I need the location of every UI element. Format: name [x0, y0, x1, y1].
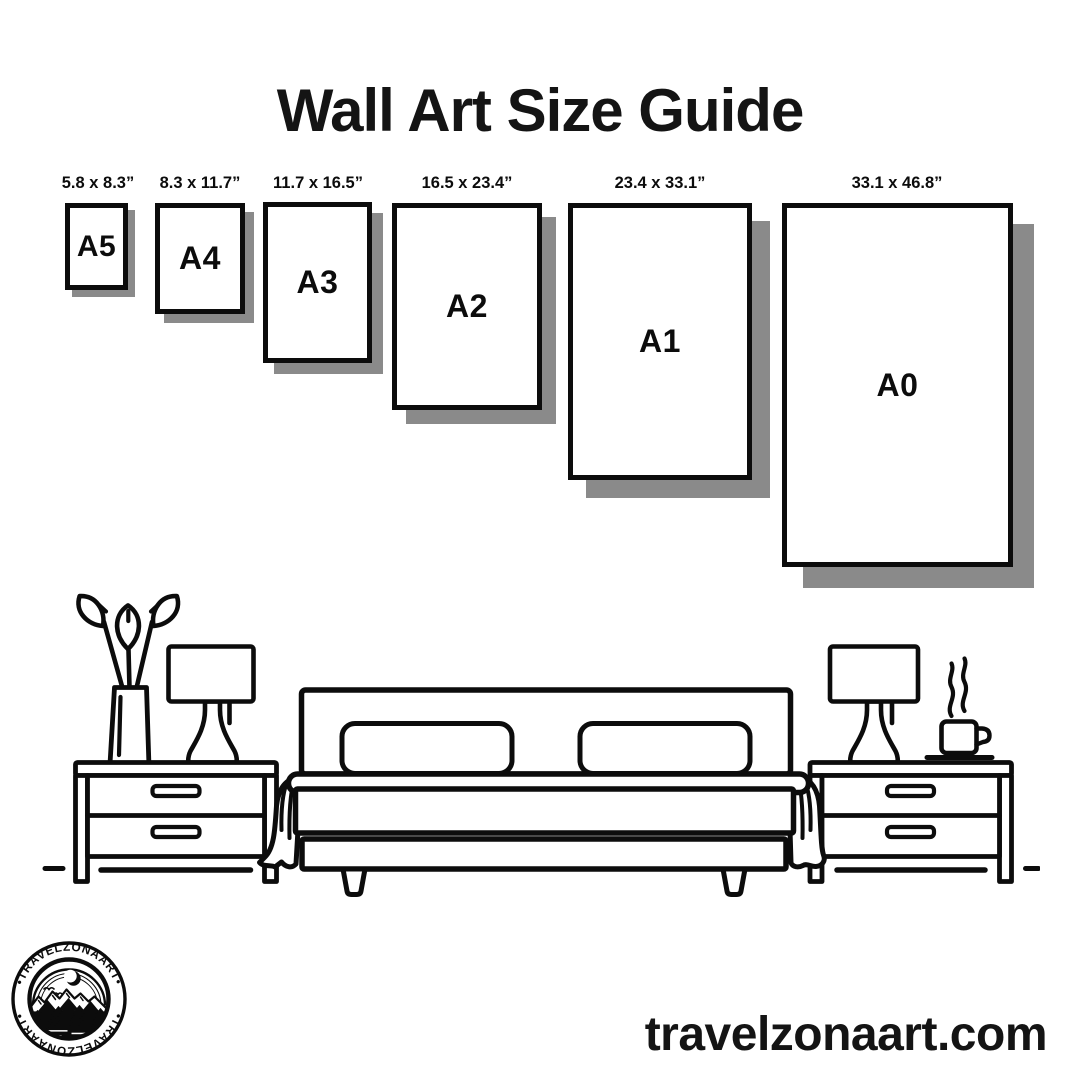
nightstand-right-icon — [810, 763, 1012, 882]
pillow-right-icon — [580, 724, 750, 774]
size-code-a5: A5 — [77, 230, 116, 264]
dimension-label-a5: 5.8 x 8.3” — [62, 174, 134, 193]
page-title: Wall Art Size Guide — [0, 81, 1080, 141]
size-guide-poster: Wall Art Size Guide 5.8 x 8.3” 8.3 x 11.… — [0, 0, 1080, 1080]
table-lamp-right-icon — [830, 647, 918, 763]
dimension-label-a4: 8.3 x 11.7” — [160, 174, 241, 193]
bedroom-illustration — [40, 585, 1040, 905]
crescent-moon-icon — [64, 970, 81, 986]
logo-mountain-scene — [26, 970, 114, 1040]
size-frame-a2: A2 — [392, 203, 542, 410]
brand-logo: •TRAVELZONAART• •TRAVELZONAART• — [6, 936, 132, 1062]
dimension-label-a3: 11.7 x 16.5” — [273, 174, 363, 193]
size-frame-a4: A4 — [155, 203, 245, 314]
size-code-a3: A3 — [297, 264, 339, 301]
size-frame-a3: A3 — [263, 202, 372, 363]
size-code-a4: A4 — [179, 240, 221, 277]
dimension-label-a2: 16.5 x 23.4” — [422, 174, 513, 193]
size-code-a1: A1 — [639, 323, 681, 360]
website-url: travelzonaart.com — [645, 1011, 1047, 1059]
pillow-left-icon — [342, 724, 512, 774]
size-code-a2: A2 — [446, 288, 488, 325]
table-lamp-left-icon — [169, 647, 254, 763]
double-bed-icon — [260, 690, 825, 895]
size-code-a0: A0 — [877, 367, 919, 404]
dimension-label-a1: 23.4 x 33.1” — [615, 174, 706, 193]
size-frame-a0: A0 — [782, 203, 1013, 567]
nightstand-left-icon — [76, 763, 277, 882]
dimension-label-a0: 33.1 x 46.8” — [852, 174, 943, 193]
coffee-cup-icon — [927, 659, 992, 758]
size-frame-a5: A5 — [65, 203, 128, 290]
size-frame-a1: A1 — [568, 203, 752, 480]
